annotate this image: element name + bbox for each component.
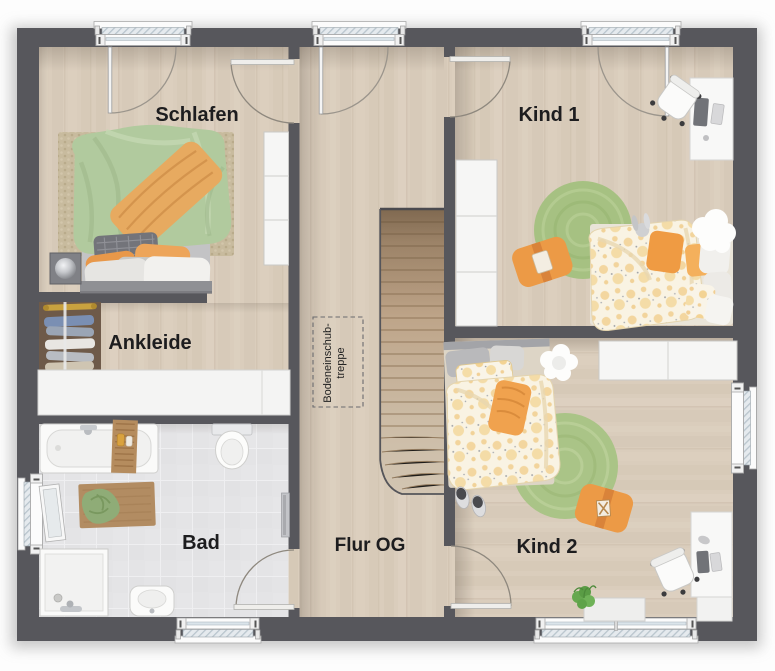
svg-text:Schlafen: Schlafen bbox=[155, 104, 238, 126]
svg-text:Bodeneinschub-: Bodeneinschub- bbox=[322, 323, 334, 403]
svg-text:Kind 1: Kind 1 bbox=[518, 104, 579, 126]
svg-text:Kind 2: Kind 2 bbox=[516, 536, 577, 558]
svg-text:Flur OG: Flur OG bbox=[335, 535, 406, 556]
svg-text:treppe: treppe bbox=[335, 347, 347, 378]
svg-text:Ankleide: Ankleide bbox=[108, 332, 191, 354]
svg-text:Bad: Bad bbox=[182, 532, 220, 554]
